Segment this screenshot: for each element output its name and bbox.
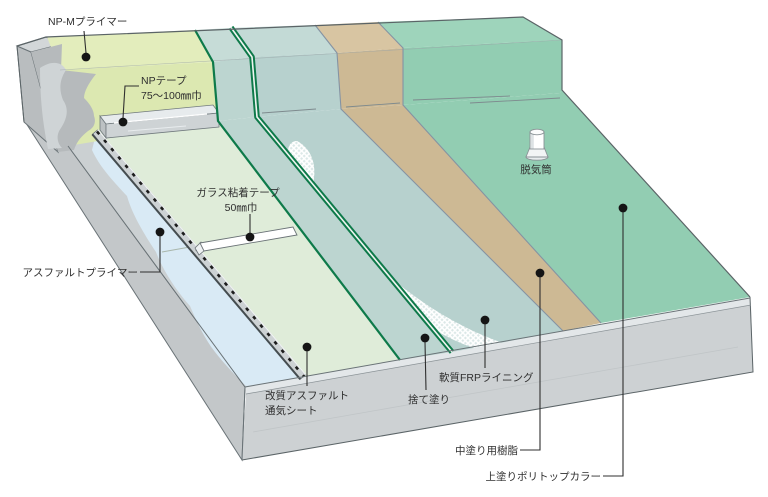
label-np-tape-width: 75〜100㎜巾: [141, 89, 202, 102]
callout-dot-np-m-primer: [82, 53, 91, 62]
label-uwanuri: 上塗りポリトップカラー: [486, 470, 602, 483]
callout-dot-asphalt-primer: [156, 228, 165, 237]
vent-top-ellipse: [530, 129, 544, 135]
label-sheet-line2: 通気シート: [265, 404, 318, 417]
callout-dot-glass-tape: [246, 233, 255, 242]
label-np-m-primer: NP-Mプライマー: [48, 16, 127, 28]
label-glass-tape: ガラス粘着テープ: [196, 186, 280, 199]
label-asphalt-primer: アスファルトプライマー: [23, 267, 139, 279]
label-sutenuri: 捨て塗り: [408, 393, 450, 406]
label-np-tape: NPテープ: [141, 75, 187, 87]
label-vent-cylinder: 脱気筒: [520, 163, 552, 176]
callout-dot-uwanuri: [619, 204, 628, 213]
callout-dot-np-tape: [119, 118, 128, 127]
label-frp-lining: 軟質FRPライニング: [439, 371, 534, 384]
callout-dot-sheet: [303, 343, 312, 352]
diagram-canvas: NP-Mプライマー NPテープ 75〜100㎜巾 ガラス粘着テープ 50㎜巾 ア…: [0, 0, 768, 497]
callout-dot-nakanuri: [536, 269, 545, 278]
frp-wall-face: [251, 53, 341, 117]
vent-body-shading: [531, 133, 534, 149]
nakanuri-wall-face: [337, 48, 403, 109]
callout-dot-sutenuri: [421, 334, 430, 343]
waterproofing-layer-diagram: NP-Mプライマー NPテープ 75〜100㎜巾 ガラス粘着テープ 50㎜巾 ア…: [0, 0, 768, 497]
label-sheet-line1: 改質アスファルト: [265, 389, 349, 402]
sutenuri-wall-face: [213, 57, 256, 121]
label-glass-tape-width: 50㎜巾: [225, 201, 258, 214]
callout-dot-frp: [481, 316, 490, 325]
label-nakanuri: 中塗り用樹脂: [455, 444, 518, 457]
